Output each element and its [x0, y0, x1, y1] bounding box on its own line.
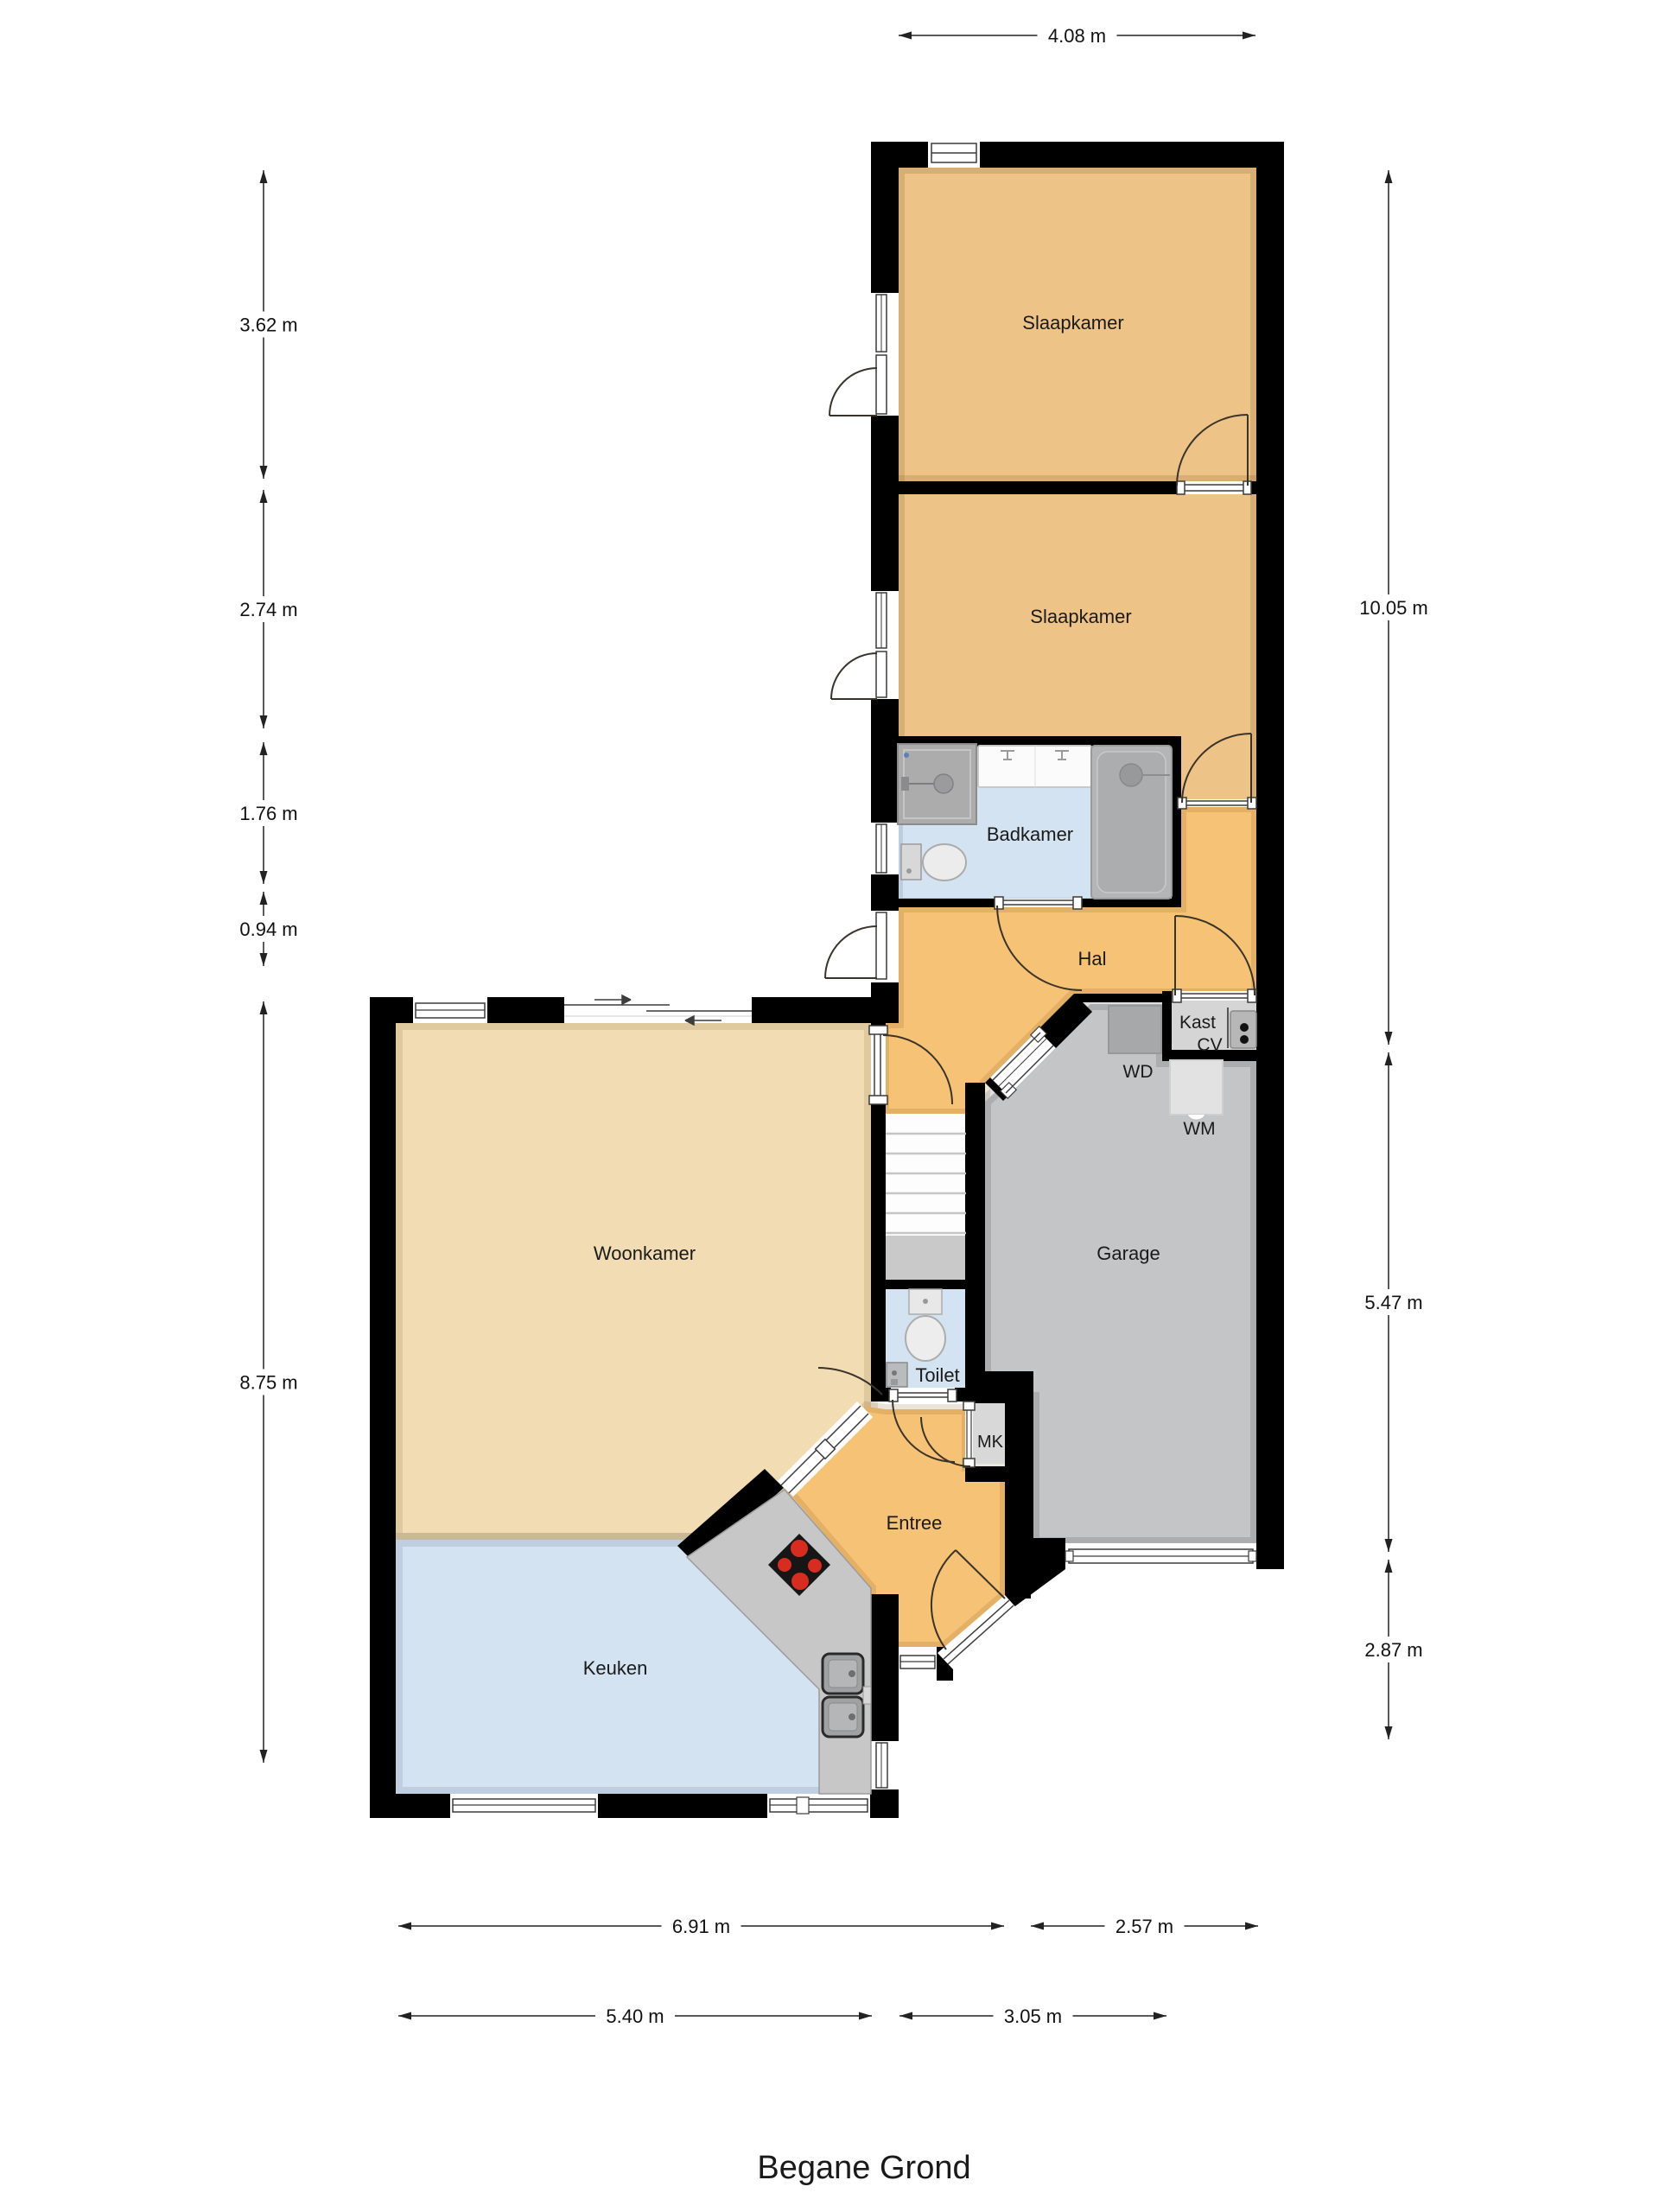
svg-text:MK: MK	[977, 1433, 1004, 1452]
svg-text:WD: WD	[1123, 1062, 1154, 1082]
svg-text:6.91 m: 6.91 m	[672, 1916, 730, 1937]
svg-text:Toilet: Toilet	[915, 1364, 959, 1386]
svg-text:3.62 m: 3.62 m	[239, 315, 297, 336]
svg-text:5.47 m: 5.47 m	[1364, 1292, 1422, 1313]
svg-text:CV: CV	[1197, 1035, 1222, 1055]
svg-text:3.05 m: 3.05 m	[1004, 2005, 1062, 2027]
svg-text:1.76 m: 1.76 m	[239, 803, 297, 824]
svg-text:Slaapkamer: Slaapkamer	[1022, 312, 1123, 334]
svg-text:Entree: Entree	[887, 1512, 943, 1534]
svg-text:Keuken: Keuken	[583, 1657, 648, 1679]
svg-text:Badkamer: Badkamer	[987, 823, 1073, 845]
svg-text:Slaapkamer: Slaapkamer	[1030, 606, 1131, 627]
svg-text:2.87 m: 2.87 m	[1364, 1639, 1422, 1661]
svg-text:Woonkamer: Woonkamer	[594, 1243, 696, 1264]
svg-text:5.40 m: 5.40 m	[606, 2005, 664, 2027]
svg-text:2.74 m: 2.74 m	[239, 599, 297, 620]
svg-text:Begane Grond: Begane Grond	[757, 2150, 970, 2186]
svg-text:4.08 m: 4.08 m	[1048, 25, 1106, 47]
svg-text:Kast: Kast	[1179, 1013, 1216, 1033]
svg-text:2.57 m: 2.57 m	[1116, 1916, 1173, 1937]
svg-text:0.94 m: 0.94 m	[239, 918, 297, 940]
svg-text:10.05 m: 10.05 m	[1359, 597, 1428, 619]
svg-text:WM: WM	[1183, 1119, 1215, 1139]
svg-text:Garage: Garage	[1096, 1243, 1160, 1264]
svg-text:8.75 m: 8.75 m	[239, 1372, 297, 1394]
svg-text:Hal: Hal	[1077, 948, 1106, 969]
